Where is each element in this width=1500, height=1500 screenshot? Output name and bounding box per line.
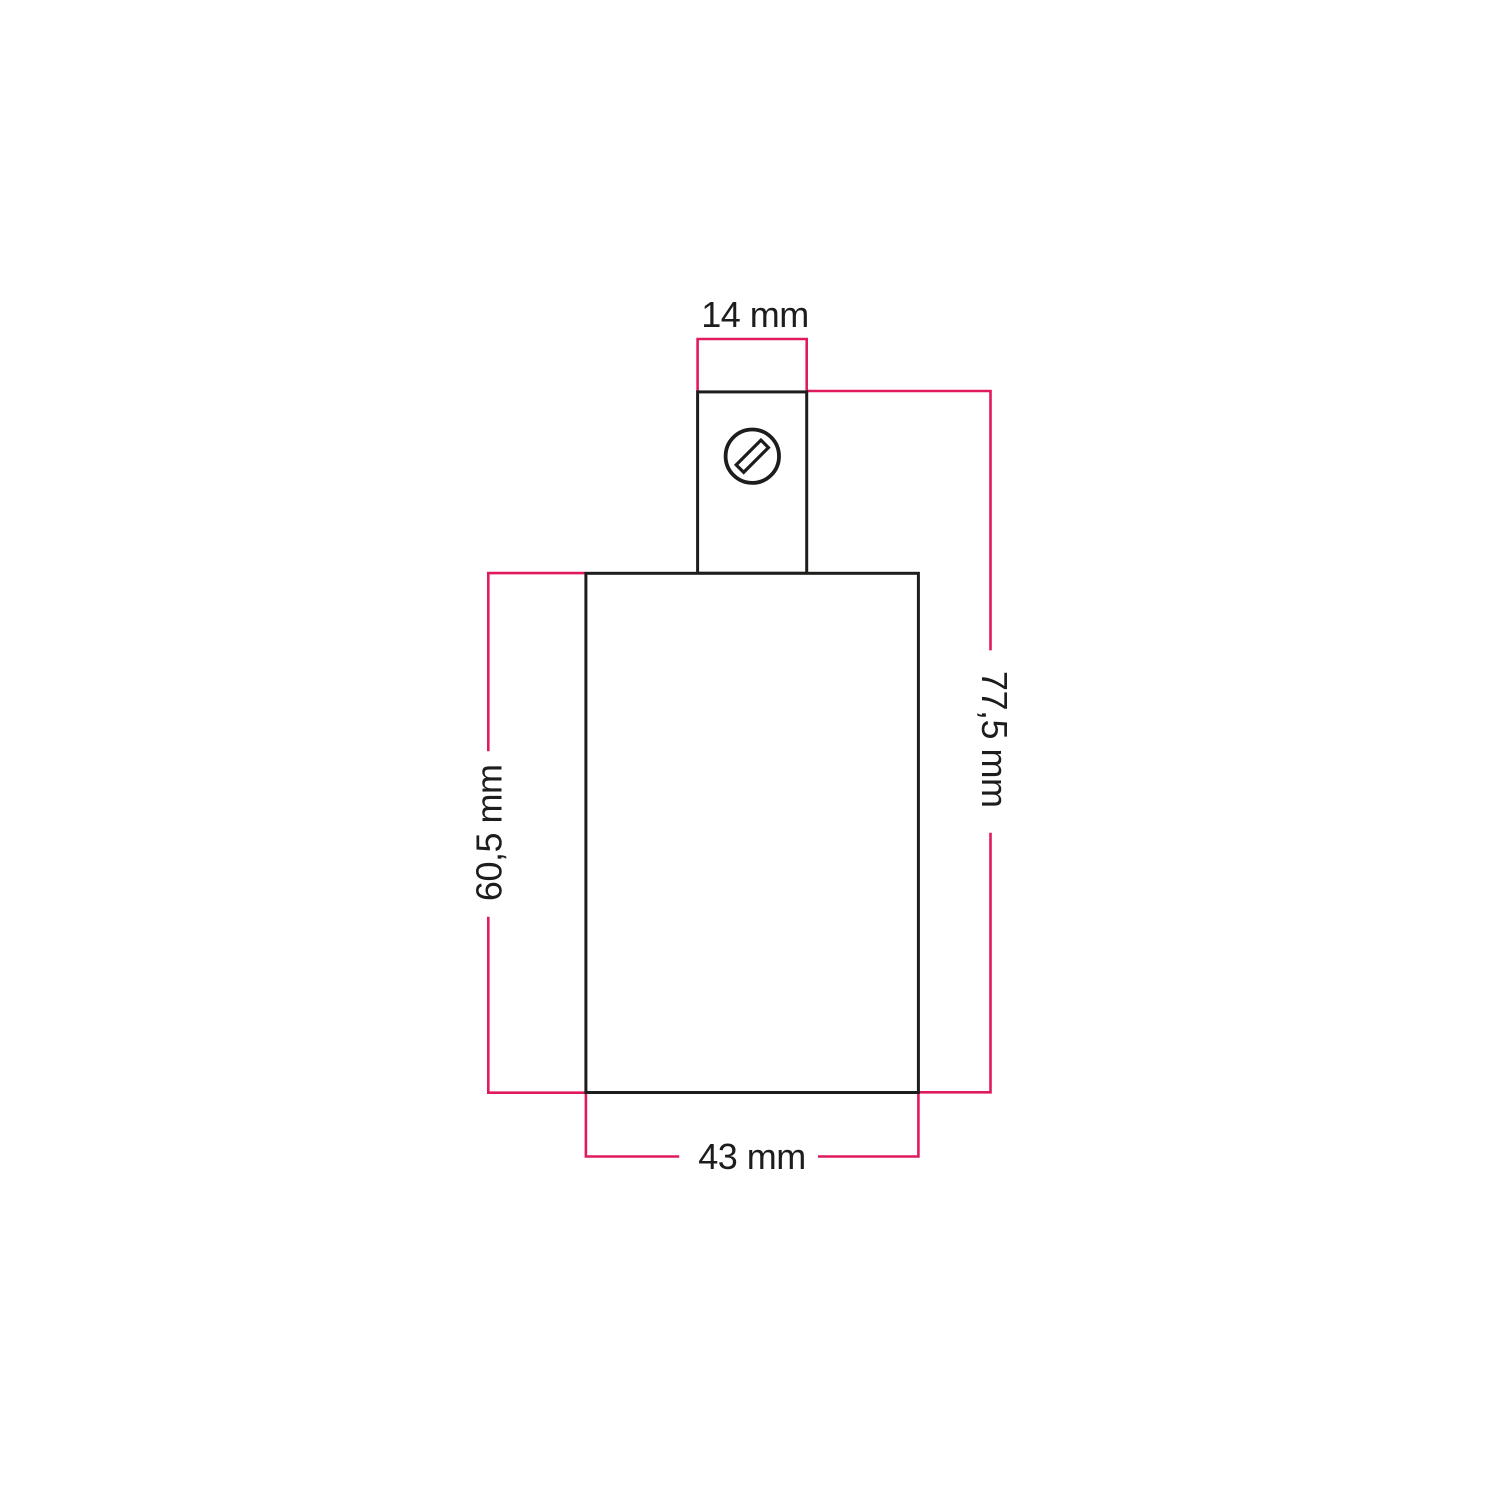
svg-text:60,5 mm: 60,5 mm — [469, 765, 510, 902]
svg-text:14 mm: 14 mm — [701, 294, 809, 335]
svg-text:43 mm: 43 mm — [698, 1136, 806, 1177]
svg-text:77,5 mm: 77,5 mm — [974, 671, 1015, 808]
